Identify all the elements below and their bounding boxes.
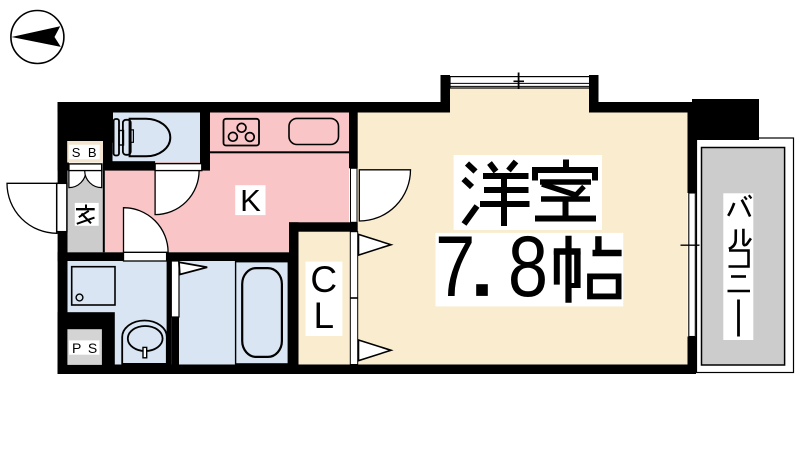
svg-text:L: L bbox=[314, 295, 335, 336]
svg-text:K: K bbox=[240, 183, 261, 218]
svg-text:SB: SB bbox=[72, 145, 104, 160]
svg-text:7: 7 bbox=[435, 218, 475, 315]
svg-text:8: 8 bbox=[508, 218, 548, 315]
svg-text:PS: PS bbox=[72, 340, 104, 356]
